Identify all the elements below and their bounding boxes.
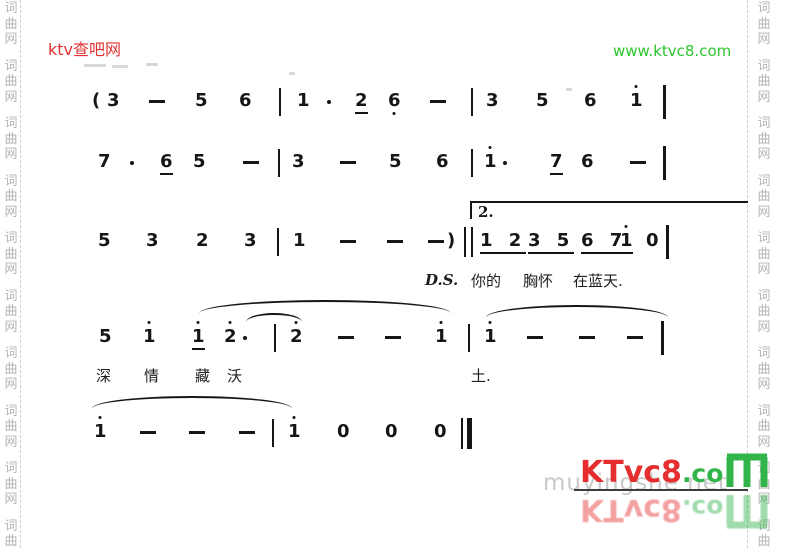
dash-note [189, 431, 205, 434]
note-group: 1 2 [480, 231, 526, 254]
note: 1 [620, 231, 633, 254]
note: 1 [288, 422, 301, 442]
volta-label: 2. [478, 203, 494, 221]
augmentation-dot [130, 161, 134, 165]
lyric: D.S. [425, 271, 458, 289]
lyric: 土. [471, 365, 491, 386]
barline [277, 228, 279, 256]
dash-note [428, 240, 444, 243]
volta-bracket: 2. [470, 201, 748, 219]
note: 3 [486, 91, 499, 111]
parenthesis: ( [92, 91, 100, 111]
barline [272, 419, 274, 447]
lyric: 深 [96, 365, 111, 386]
note: 2 [290, 327, 303, 347]
octave-dot-below-icon [393, 112, 396, 115]
slur-arc [246, 313, 302, 324]
note: 3 [146, 231, 159, 251]
note: 0 [434, 422, 447, 442]
end-barline [663, 85, 666, 119]
note: 0 [337, 422, 350, 442]
augmentation-dot [503, 161, 507, 165]
note: 1 [192, 327, 205, 350]
dash-note [338, 336, 354, 339]
slur-arc [486, 305, 668, 320]
note: 3 [244, 231, 257, 251]
final-barline [461, 418, 472, 449]
barline [274, 324, 276, 352]
lyric: 胸怀 [523, 270, 553, 291]
lyric: 在蓝天. [573, 270, 623, 291]
jianpu-line: 11000 [0, 422, 786, 448]
print-smudge [112, 65, 128, 68]
dash-note [239, 431, 255, 434]
note: 2 [196, 231, 209, 251]
lyric: 藏 [195, 365, 210, 386]
octave-dot-above-icon [148, 321, 151, 324]
print-smudge [146, 63, 158, 66]
dash-note [630, 161, 646, 164]
logo-green-text: .co [682, 458, 724, 490]
dash-note [579, 336, 595, 339]
note: 3 [292, 152, 305, 172]
dash-note [387, 240, 403, 243]
logo-reflection-m-icon [725, 494, 769, 530]
dash-note [627, 336, 643, 339]
note: 5 [195, 91, 208, 111]
barline [471, 149, 473, 177]
lyric: 你的 [471, 270, 501, 291]
note: 6 [388, 91, 401, 111]
dash-note [340, 161, 356, 164]
slur-arc [92, 396, 292, 411]
augmentation-dot [243, 336, 247, 340]
note: 5 [389, 152, 402, 172]
dash-note [140, 431, 156, 434]
note-group: 3 5 [528, 231, 574, 254]
augmentation-dot [327, 100, 331, 104]
note: 1 [143, 327, 156, 347]
note: 2 [355, 91, 368, 114]
jianpu-line: 765356176 [0, 152, 786, 178]
logo-m-icon [725, 452, 769, 488]
logo-reflection-green-text: .co [682, 492, 724, 524]
note: 1 [484, 327, 497, 347]
barline [278, 149, 280, 177]
note: 6 [239, 91, 252, 111]
note: 6 [584, 91, 597, 111]
barline [279, 88, 281, 116]
lyric: 情 [144, 365, 159, 386]
sheet-page: 词曲网词曲网词曲网词曲网词曲网词曲网词曲网词曲网词曲网词曲网 词曲网词曲网词曲网… [0, 0, 786, 548]
note: 2 [224, 327, 237, 347]
note: 3 [107, 91, 120, 111]
dash-note [385, 336, 401, 339]
dash-note [430, 100, 446, 103]
print-smudge [84, 64, 106, 67]
logo-text: KTvc8.co [580, 452, 769, 490]
note: 5 [99, 327, 112, 347]
parenthesis: ) [447, 231, 455, 251]
note: 1 [94, 422, 107, 442]
jianpu-line: 5112211 [0, 327, 786, 353]
octave-dot-above-icon [635, 85, 638, 88]
print-smudge [566, 88, 572, 91]
note: 1 [293, 231, 306, 251]
lyric: 沃 [227, 365, 242, 386]
note: 5 [193, 152, 206, 172]
note: 5 [98, 231, 111, 251]
logo-red-text: KTvc8 [580, 456, 682, 490]
octave-dot-above-icon [625, 225, 628, 228]
note: 1 [630, 91, 643, 111]
print-smudge [289, 72, 295, 75]
octave-dot-above-icon [99, 416, 102, 419]
double-barline [464, 227, 473, 257]
dash-note [527, 336, 543, 339]
octave-dot-above-icon [229, 321, 232, 324]
note: 1 [297, 91, 310, 111]
note: 7 [98, 152, 111, 172]
note: 0 [646, 231, 659, 251]
end-barline [663, 146, 666, 180]
octave-dot-above-icon [293, 416, 296, 419]
end-barline [661, 321, 664, 355]
note: 5 [536, 91, 549, 111]
logo-underline [574, 489, 748, 491]
dash-note [340, 240, 356, 243]
note: 6 [436, 152, 449, 172]
barline [468, 324, 470, 352]
octave-dot-above-icon [489, 321, 492, 324]
note: 1 [435, 327, 448, 347]
octave-dot-above-icon [197, 321, 200, 324]
end-barline [666, 225, 669, 259]
jianpu-line: (3561263561 [0, 91, 786, 117]
octave-dot-above-icon [489, 146, 492, 149]
note: 1 [484, 152, 497, 172]
note: 6 [581, 152, 594, 172]
barline [471, 88, 473, 116]
dash-note [149, 100, 165, 103]
jianpu-line: 53231)1 23 56 710 [0, 231, 786, 257]
note: 0 [385, 422, 398, 442]
note: 6 [160, 152, 173, 175]
octave-dot-above-icon [440, 321, 443, 324]
note: 7 [550, 152, 563, 175]
dash-note [243, 161, 259, 164]
logo-reflection: KTvc8.co [580, 492, 769, 530]
slur-arc [199, 300, 451, 316]
logo-reflection-red-text: KTvc8 [580, 492, 682, 526]
